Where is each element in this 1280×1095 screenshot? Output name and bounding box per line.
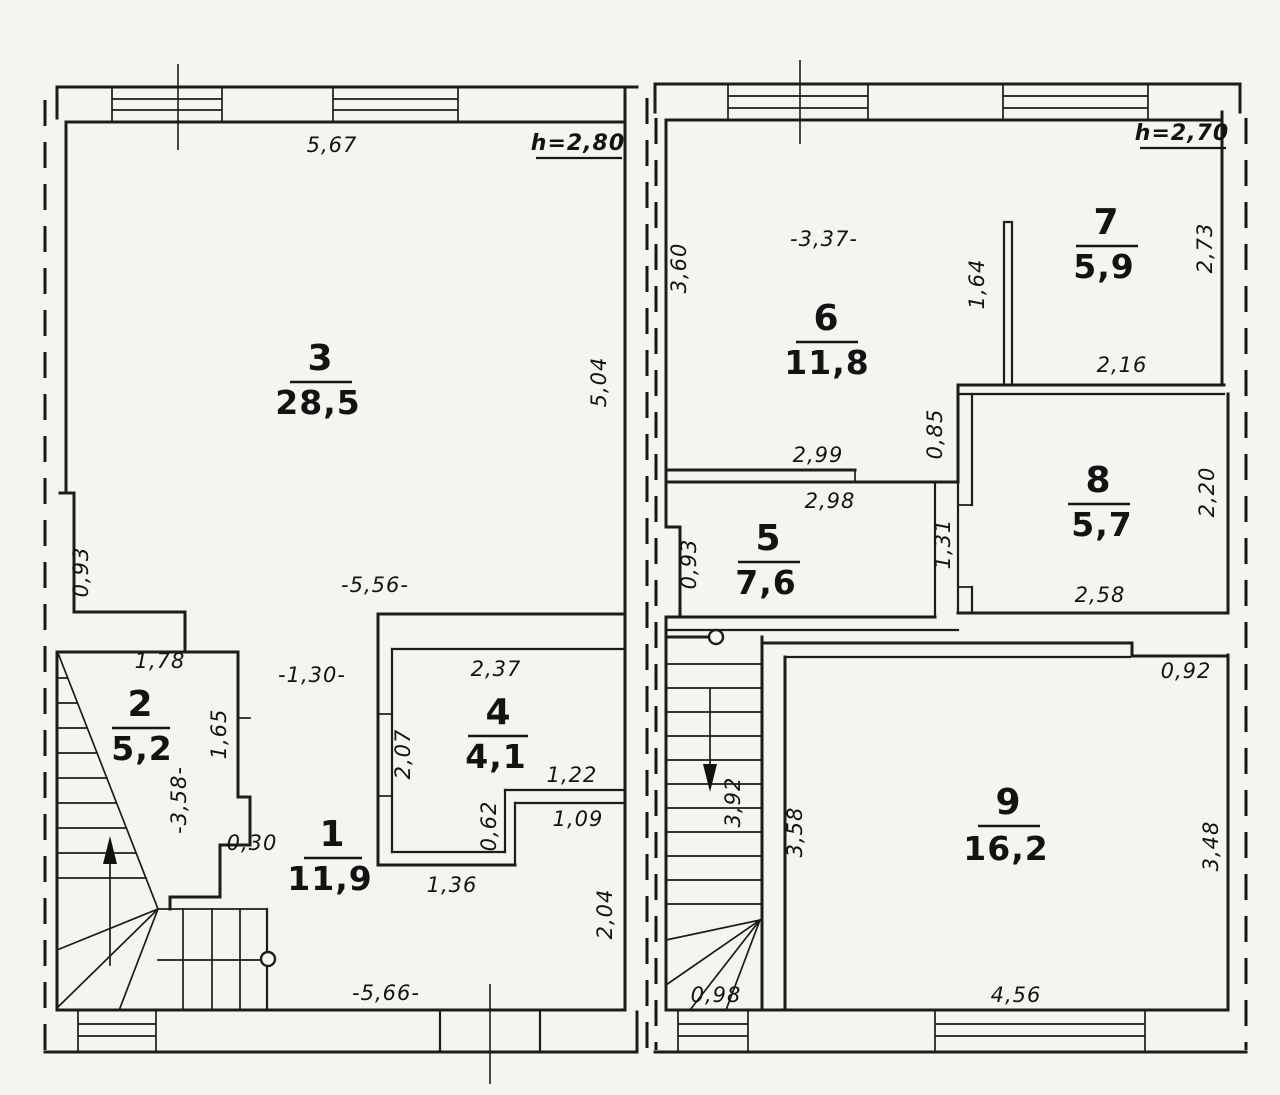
dim-label: -5,56- [341,573,409,597]
dim-label: 2,04 [593,889,617,940]
dim-label: 3,60 [667,243,691,294]
room-number: 2 [127,684,152,725]
dim-label: -1,30- [278,663,346,687]
left-plan-walls [45,87,637,1052]
room-5-label: 5 7,6 [735,518,800,602]
window-line [935,1010,1145,1052]
wall-line [1004,222,1012,385]
room-number: 4 [485,692,510,733]
room-1-label: 1 11,9 [287,814,372,898]
dim-label: -3,58- [167,766,191,834]
dim-label: 1,31 [931,519,955,570]
dim-label: 1,78 [135,649,186,673]
room-area: 4,1 [465,737,526,776]
room-area: 11,9 [287,859,372,898]
window-line [678,1010,748,1052]
dim-label: 3,58 [783,807,807,858]
dim-label: 2,37 [471,657,522,681]
room-number: 1 [319,814,344,855]
dim-label: 5,67 [307,133,358,157]
ceiling-height-label: h=2,80 [531,131,625,156]
window-line [333,87,458,122]
dim-label: 5,04 [587,357,611,408]
dim-label: -3,37- [790,227,858,251]
direction-arrow-head [703,764,717,792]
dim-label: 0,92 [1161,659,1212,683]
room-2-label: 2 5,2 [111,684,172,768]
scanned-floor-plan-page: 5,67 h=2,80 5,04 0,93 -5,56- 1,78 -1,30-… [0,0,1280,1095]
window-line [112,87,222,122]
room-number: 5 [755,518,780,559]
direction-arrow-head [103,836,117,864]
dim-label: -5,66- [352,981,420,1005]
room-area: 16,2 [963,829,1048,868]
room-area: 11,8 [784,343,869,382]
room-4-label: 4 4,1 [465,692,528,776]
door-pivot [709,630,723,644]
room-area: 5,9 [1073,247,1134,286]
floor-plan-drawing: 5,67 h=2,80 5,04 0,93 -5,56- 1,78 -1,30-… [0,0,1280,1095]
dim-label: 2,07 [391,729,415,780]
dim-label: 3,92 [721,777,745,828]
room-number: 8 [1085,460,1110,501]
stair-treads [666,664,762,904]
ceiling-height-label: h=2,70 [1135,121,1229,146]
room-6-label: 6 11,8 [784,298,869,382]
room-number: 7 [1093,202,1118,243]
wall-line [762,643,1228,656]
window-line [78,1010,156,1052]
room-area: 5,2 [111,729,172,768]
dim-label: 2,98 [805,489,856,513]
dim-label: 1,09 [553,807,604,831]
dim-label: 2,73 [1193,223,1217,274]
dim-label: 2,58 [1075,583,1126,607]
dim-label: 0,30 [227,831,278,855]
dim-label: 3,48 [1199,821,1223,872]
room-7-label: 7 5,9 [1073,202,1138,286]
door-pivot [261,952,275,966]
dim-label: 4,56 [991,983,1042,1007]
room-number: 3 [307,338,332,379]
staircase-right [666,630,762,1010]
dim-label: 0,93 [677,539,701,590]
room-area: 7,6 [735,563,796,602]
dim-label: 0,93 [69,547,93,598]
room-area: 5,7 [1071,505,1132,544]
dim-label: 1,22 [547,763,598,787]
dim-label: 2,16 [1097,353,1148,377]
floor-plan-left: 5,67 h=2,80 5,04 0,93 -5,56- 1,78 -1,30-… [45,64,647,1084]
room-area: 28,5 [275,383,360,422]
dim-label: 0,62 [477,801,501,852]
left-plan-labels: 5,67 h=2,80 5,04 0,93 -5,56- 1,78 -1,30-… [69,131,625,1005]
dim-label: 2,99 [793,443,844,467]
room-9-label: 9 16,2 [963,782,1048,868]
room-8-label: 8 5,7 [1068,460,1133,544]
room-number: 6 [813,298,838,339]
room-3-label: 3 28,5 [275,338,360,422]
dim-label: 0,98 [691,983,742,1007]
right-plan-labels: h=2,70 3,60 -3,37- 1,64 2,73 2,16 0,85 2… [667,121,1229,1007]
dim-label: 0,85 [923,409,947,460]
floor-plan-right: h=2,70 3,60 -3,37- 1,64 2,73 2,16 0,85 2… [655,60,1246,1052]
stair-winders [57,909,158,1008]
door-tick [958,505,972,587]
dim-label: 1,65 [207,709,231,760]
left-plan-windows [78,87,458,1052]
dim-label: 1,36 [427,873,478,897]
dim-label: 2,20 [1195,467,1219,518]
window-line [728,84,868,120]
dim-label: 1,64 [965,259,989,310]
room-number: 9 [995,782,1020,823]
window-line [1003,84,1148,120]
